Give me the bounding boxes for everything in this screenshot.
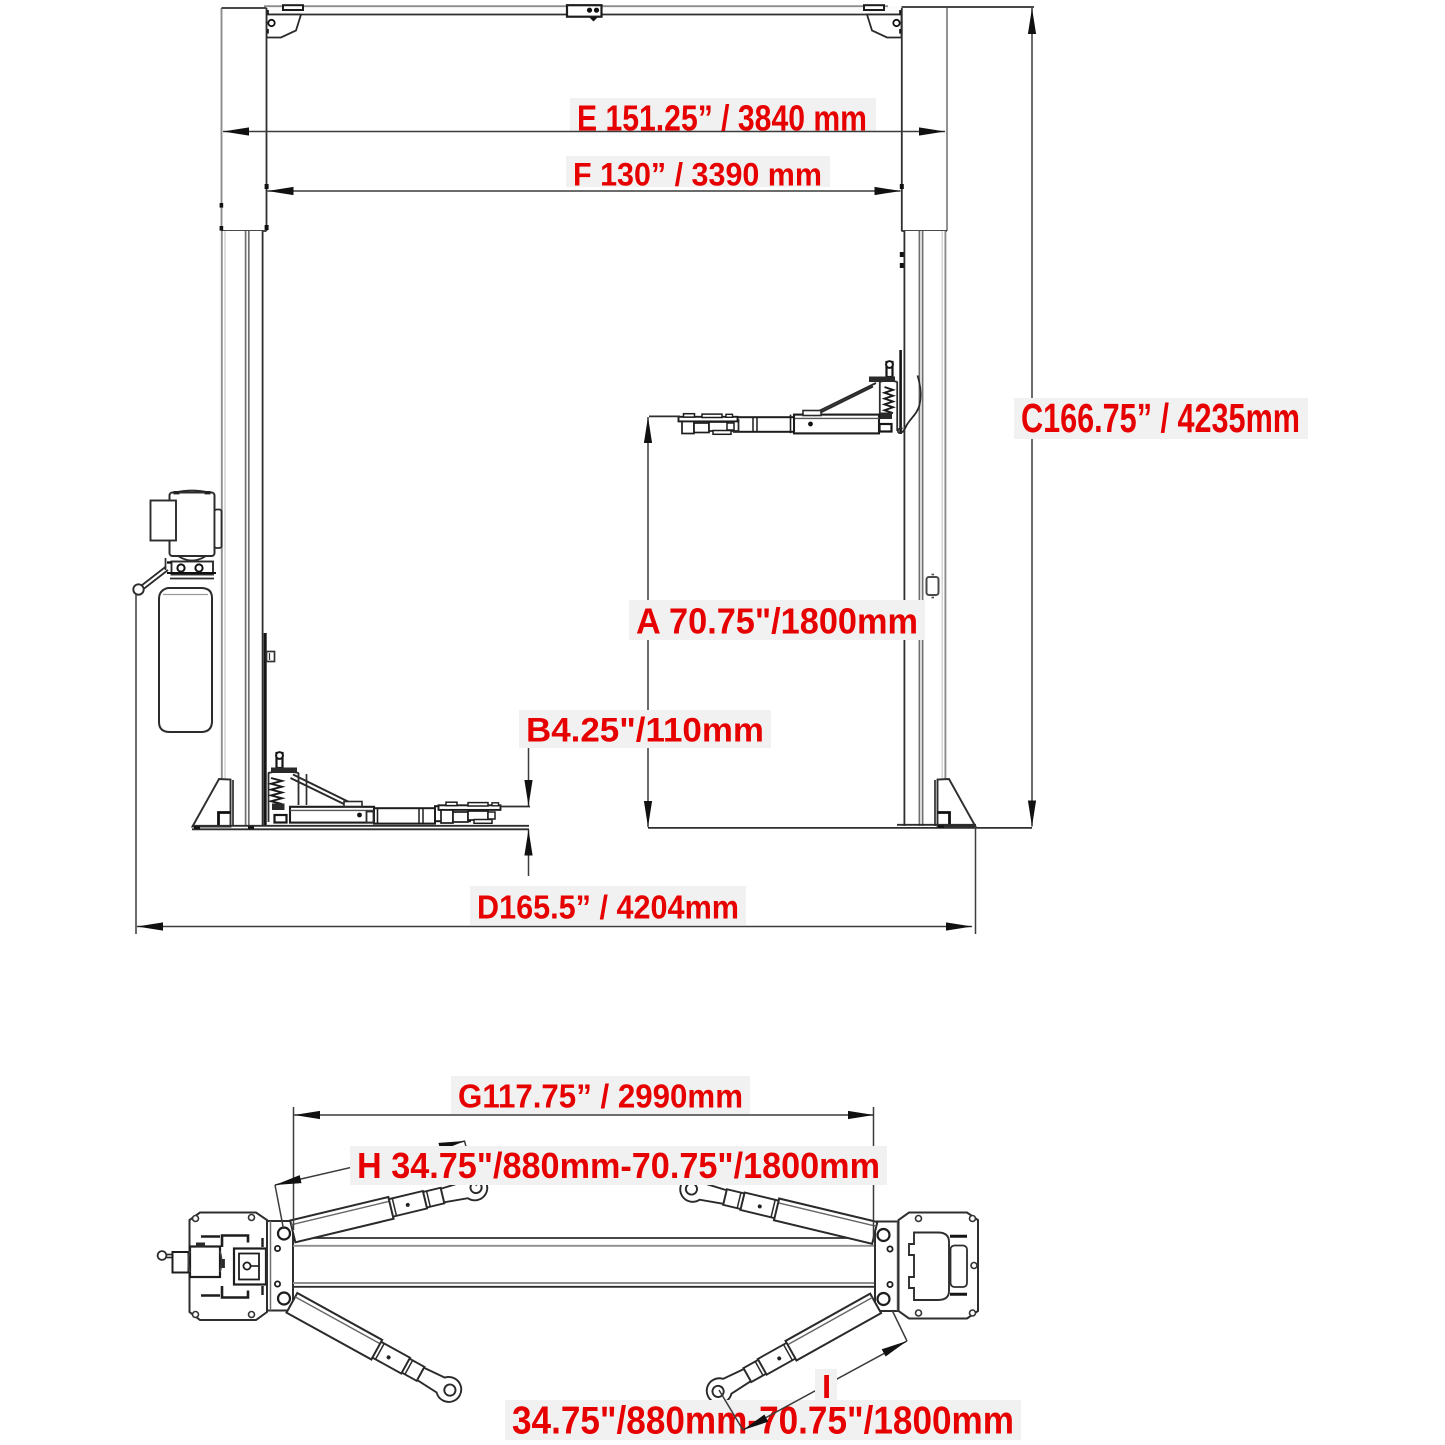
svg-text:I: I bbox=[822, 1368, 831, 1405]
svg-text:B4.25"/110mm: B4.25"/110mm bbox=[526, 712, 764, 750]
svg-text:H 34.75"/880mm-70.75"/1800mm: H 34.75"/880mm-70.75"/1800mm bbox=[357, 1145, 880, 1186]
svg-text:D165.5” / 4204mm: D165.5” / 4204mm bbox=[477, 889, 739, 926]
svg-text:A 70.75"/1800mm: A 70.75"/1800mm bbox=[636, 601, 918, 642]
svg-text:G117.75” / 2990mm: G117.75” / 2990mm bbox=[458, 1078, 743, 1115]
svg-text:E 151.25” / 3840 mm: E 151.25” / 3840 mm bbox=[577, 98, 867, 139]
svg-text:F 130” / 3390 mm: F 130” / 3390 mm bbox=[573, 157, 822, 193]
svg-text:C166.75” / 4235mm: C166.75” / 4235mm bbox=[1021, 395, 1300, 441]
